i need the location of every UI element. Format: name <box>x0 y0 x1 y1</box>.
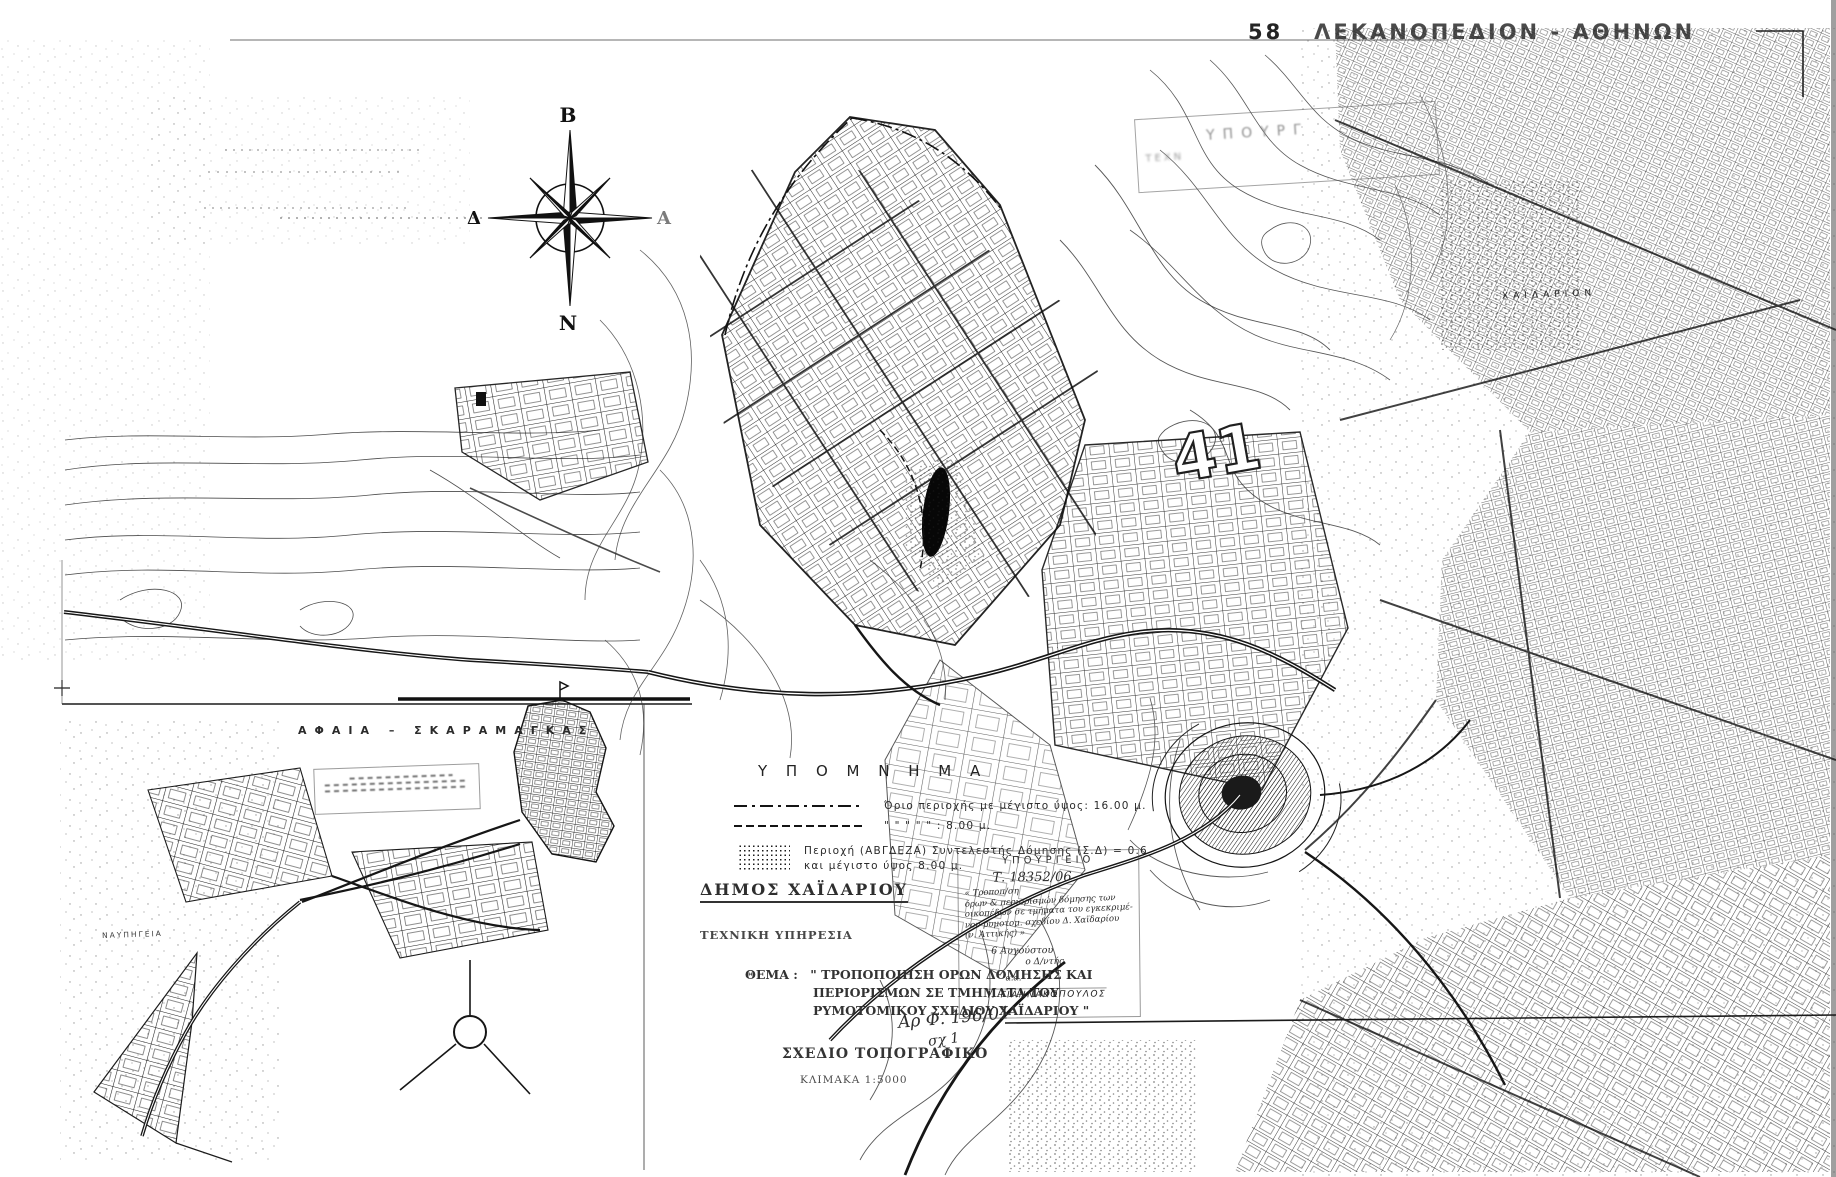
legend-item-1: Όριο περιοχής με μέγιστο ύψος: 16.00 μ. <box>884 800 1147 812</box>
sheet-name: ΛΕΚΑΝΟΠΕΔΙΟΝ - ΑΘΗΝΩΝ <box>1314 20 1695 44</box>
illegible-inset-stamp <box>313 763 481 815</box>
compass-label-west: Δ <box>467 208 481 229</box>
faded-stamp-line2: ΤΕΧΝ <box>1145 136 1437 165</box>
compass-label-south: Ν <box>559 311 577 335</box>
map-sheet-number: 41 <box>1166 410 1267 498</box>
legend-symbol-dashdot <box>734 805 862 808</box>
compass-rose: Β Ν Δ Α <box>467 103 672 335</box>
legend-title: Υ Π Ο Μ Ν Η Μ Α <box>758 762 987 780</box>
stamp-scribble <box>349 774 453 780</box>
legend-symbol-dash <box>734 825 862 828</box>
stamp-signature: Ι. ΓΙΑΝΝΑΚΟΠΟΥΛΟΣ <box>988 987 1107 1000</box>
stamp-director: ο Δ/ντής <box>1025 956 1133 967</box>
stamp-header: ΥΠΟΥΡΓΕΙΟ <box>964 854 1132 867</box>
legend-symbol-dotted-area <box>738 844 790 870</box>
doc-drawing-type: ΣΧΕΔΙΟ ΤΟΠΟΓΡΑΦΙΚΟ <box>782 1046 988 1062</box>
stamp-signature-prefix: α.α. <box>1005 972 1133 982</box>
doc-subject-label: ΘΕΜΑ : <box>745 967 798 982</box>
sheet-title: 58 ΛΕΚΑΝΟΠΕΔΙΟΝ - ΑΘΗΝΩΝ <box>1248 20 1695 44</box>
stamp-date: 6 Αυγούστου <box>991 944 1053 956</box>
stamp-scribble <box>325 785 469 792</box>
doc-scale: ΚΛΙΜΑΚΑ 1:5000 <box>800 1074 908 1086</box>
scanned-map-page: 41 Β Ν Δ Α 58 ΛΕΚΑΝΟΠΕΔΙΟΝ - ΑΘΗΝΩΝ ΥΠΟΥ… <box>0 0 1836 1177</box>
legend-item-2: " " " " " : 8.00 μ. <box>884 820 991 832</box>
doc-municipality: ΔΗΜΟΣ ΧΑΪΔΑΡΙΟΥ <box>700 880 908 903</box>
compass-label-north: Β <box>560 103 577 127</box>
sheet-number: 58 <box>1248 20 1283 44</box>
doc-service: ΤΕΧΝΙΚΗ ΥΠΗΡΕΣΙΑ <box>700 928 853 942</box>
inset-title-aphaia: ΑΦΑΙΑ – ΣΚΑΡΑΜΑΓΚΑΣ <box>298 724 594 737</box>
compass-label-east: Α <box>656 208 672 229</box>
ministry-stamp: ΥΠΟΥΡΓΕΙΟ Τ. 18352/06 « Τροποπ/ση όρων &… <box>957 849 1141 1019</box>
